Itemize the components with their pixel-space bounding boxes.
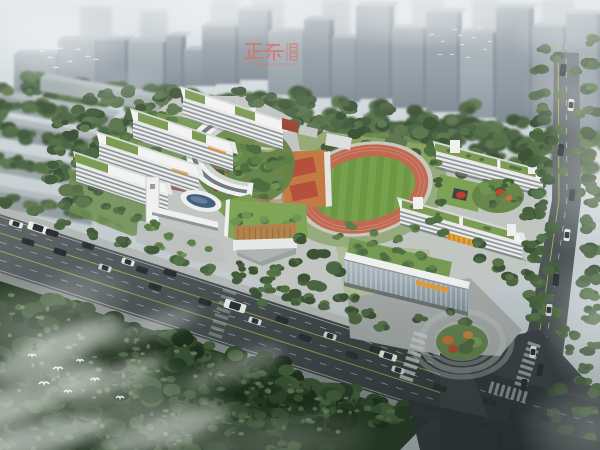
svg-text:EST DESIGN GROUP: EST DESIGN GROUP [245,62,296,67]
